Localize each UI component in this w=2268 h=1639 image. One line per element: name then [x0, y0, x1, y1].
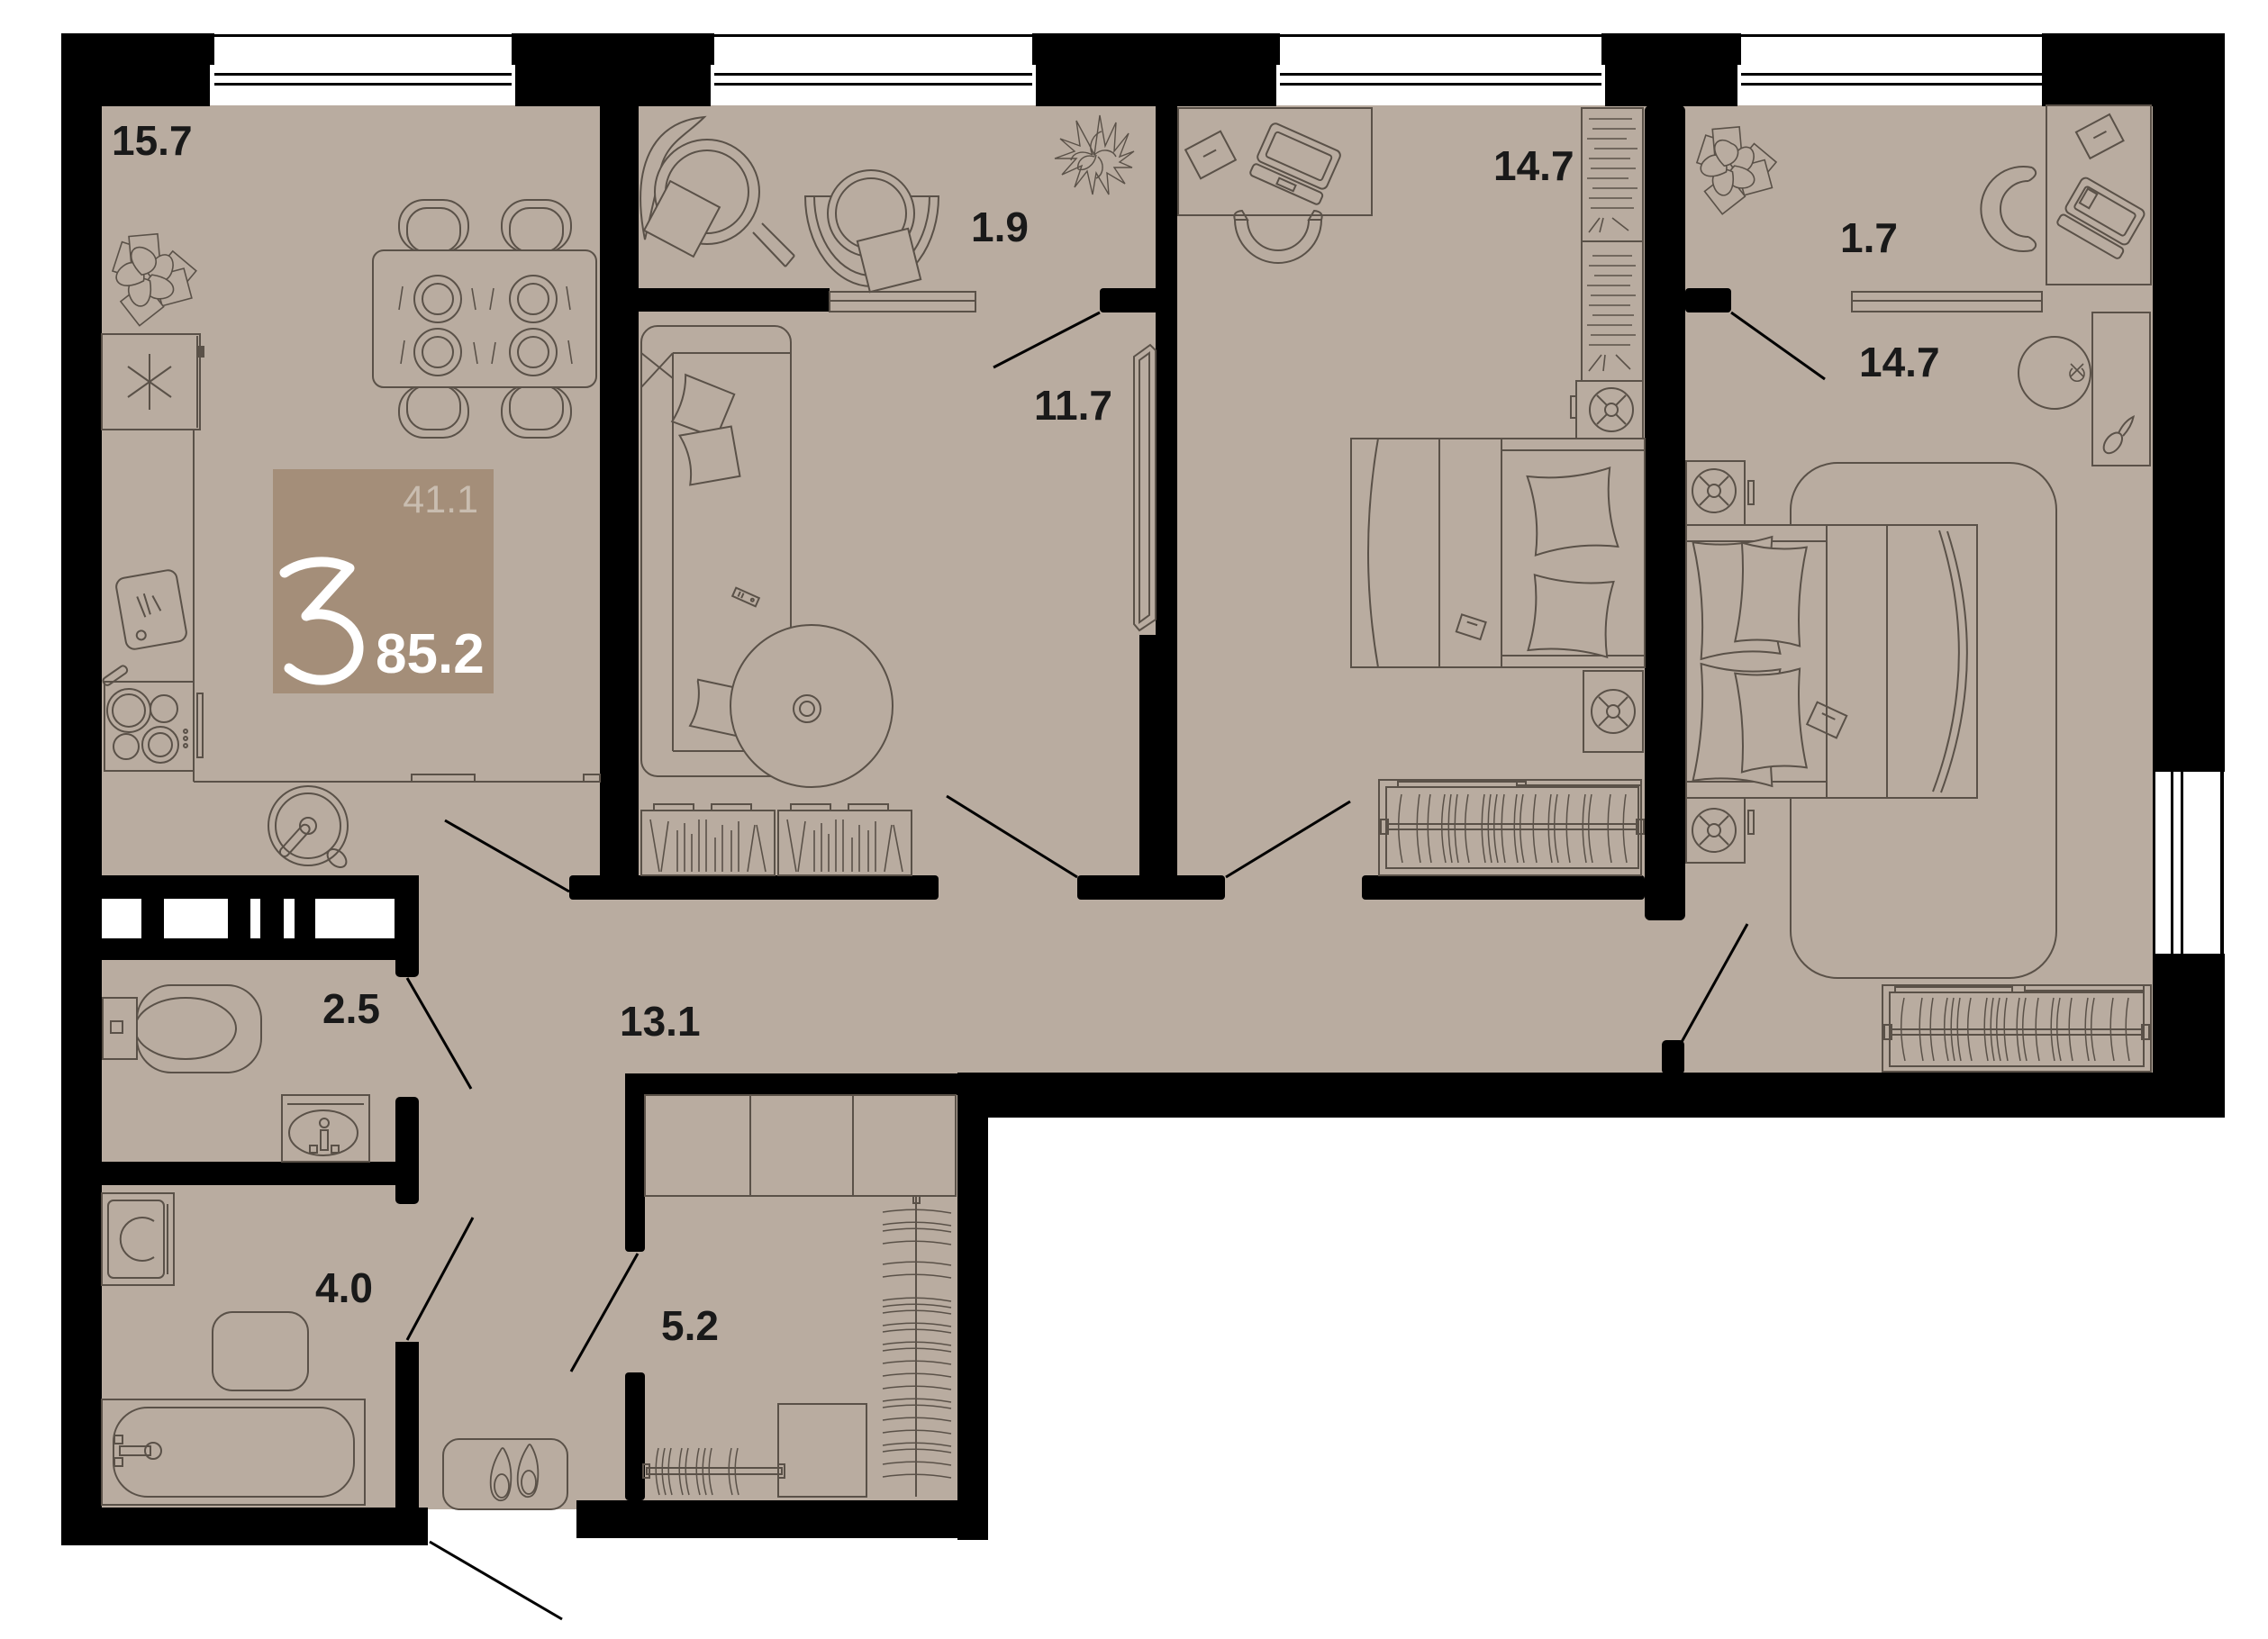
svg-text:85.2: 85.2: [376, 623, 485, 685]
svg-text:11.7: 11.7: [1034, 382, 1112, 429]
svg-text:41.1: 41.1: [403, 478, 478, 521]
svg-text:15.7: 15.7: [112, 117, 193, 164]
svg-text:1.7: 1.7: [1840, 214, 1898, 261]
svg-text:14.7: 14.7: [1493, 142, 1574, 189]
svg-text:14.7: 14.7: [1859, 339, 1940, 385]
svg-text:13.1: 13.1: [620, 998, 701, 1045]
svg-text:1.9: 1.9: [971, 204, 1029, 250]
svg-text:2.5: 2.5: [322, 985, 380, 1032]
svg-text:4.0: 4.0: [315, 1264, 373, 1311]
svg-text:5.2: 5.2: [661, 1302, 719, 1349]
